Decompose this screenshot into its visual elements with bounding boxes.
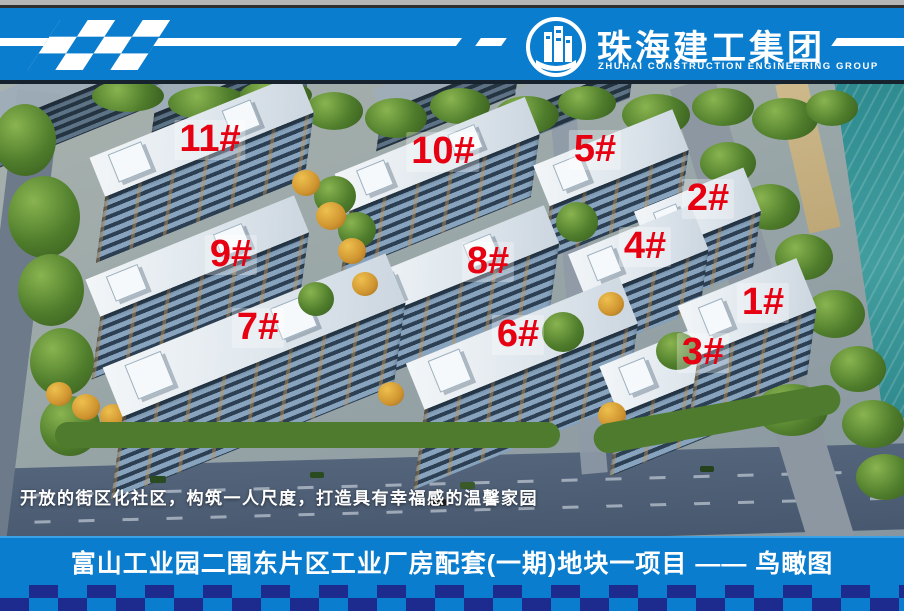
aerial-rendering: 11#10#5#2#4#9#8#1#7#6#3# 开放的街区化社区，构筑一人尺度…	[0, 84, 904, 536]
yellow-tree-blob	[72, 394, 100, 420]
scene-caption: 开放的街区化社区，构筑一人尺度，打造具有幸福感的温馨家园	[20, 484, 538, 509]
building-label: 3#	[677, 333, 729, 373]
yellow-tree-blob	[292, 170, 320, 196]
building-label: 1#	[737, 283, 789, 323]
building-label: 11#	[174, 120, 245, 160]
yellow-tree-blob	[316, 202, 346, 230]
building-label: 6#	[492, 315, 544, 355]
tree-blob	[298, 282, 334, 316]
building-label: 5#	[569, 130, 621, 170]
car	[150, 476, 166, 483]
poster-canvas: 珠海建工集团 ZHUHAI CONSTRUCTION ENGINEERING G…	[0, 0, 904, 611]
tree-blob	[558, 86, 616, 120]
tree-blob	[830, 346, 886, 392]
tree-blob	[556, 202, 598, 242]
car	[310, 472, 324, 478]
header-bar: 珠海建工集团 ZHUHAI CONSTRUCTION ENGINEERING G…	[0, 8, 904, 80]
tree-blob	[692, 88, 754, 126]
yellow-tree-blob	[46, 382, 72, 406]
header-rule-dash	[475, 38, 507, 46]
brand-name-en: ZHUHAI CONSTRUCTION ENGINEERING GROUP	[598, 61, 879, 72]
building-label: 7#	[232, 308, 284, 348]
yellow-tree-blob	[378, 382, 404, 406]
tree-blob	[842, 400, 904, 448]
building-label: 8#	[462, 242, 514, 282]
footer-checker-strip	[0, 585, 904, 611]
tree-blob	[8, 176, 80, 258]
building-label: 2#	[682, 179, 734, 219]
yellow-tree-blob	[598, 292, 624, 316]
tree-blob	[542, 312, 584, 352]
checkered-flag-icon	[28, 20, 170, 70]
footer-title-bar: 富山工业园二围东片区工业厂房配套(一期)地块一项目 —— 鸟瞰图	[0, 536, 904, 585]
building-label: 9#	[205, 235, 257, 275]
tree-blob	[18, 254, 84, 326]
building-label: 10#	[406, 132, 479, 172]
building-label: 4#	[619, 227, 671, 267]
tree-blob	[806, 90, 858, 126]
yellow-tree-blob	[352, 272, 378, 296]
yellow-tree-blob	[338, 238, 366, 264]
project-title: 富山工业园二围东片区工业厂房配套(一期)地块一项目 —— 鸟瞰图	[71, 544, 834, 580]
car	[700, 466, 714, 472]
header-rule-right	[831, 38, 904, 46]
hedge-strip	[55, 422, 560, 448]
building-circle-icon	[524, 16, 588, 78]
